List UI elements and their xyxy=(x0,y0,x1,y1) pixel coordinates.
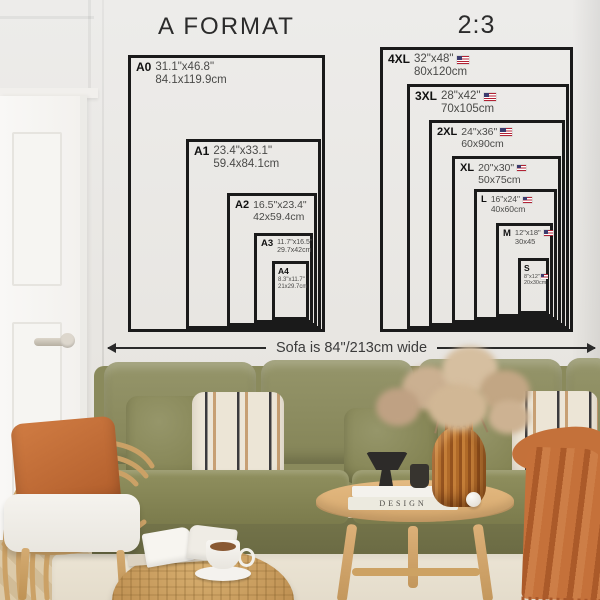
size-cm: 20x30cm xyxy=(524,280,544,286)
size-cm: 30x45 xyxy=(515,238,553,247)
us-flag-icon xyxy=(517,165,526,171)
size-cm: 80x120cm xyxy=(414,66,469,79)
size-inches: 31.1"x46.8" xyxy=(155,61,214,74)
size-box-a4: A4 8.3"x11.7" 21x29.7cm xyxy=(272,261,309,320)
us-flag-icon xyxy=(523,197,532,203)
size-label: 2XL xyxy=(437,126,457,150)
flower-blob xyxy=(376,388,420,426)
dried-flowers xyxy=(368,340,543,445)
size-cm: 21x29.7cm xyxy=(278,284,304,291)
size-cm: 42x59.4cm xyxy=(253,211,307,223)
flower-blob xyxy=(488,400,530,434)
size-inches: 8.3"x11.7" xyxy=(278,277,305,284)
size-box-s: S 8"x12" 20x30cm xyxy=(518,258,549,314)
poster-size-guide-photo: A FORMAT 2:3 A0 31.1"x46.8" 84.1x119.9cm… xyxy=(0,0,600,600)
size-label: M xyxy=(503,229,511,246)
size-label: A1 xyxy=(194,145,209,171)
table-stretcher xyxy=(352,568,480,576)
size-label: A3 xyxy=(261,239,273,255)
size-cm: 60x90cm xyxy=(461,138,512,150)
size-cm: 29.7x42cm xyxy=(277,247,312,255)
us-flag-icon xyxy=(484,93,496,101)
flower-blob xyxy=(428,384,488,430)
table-leg xyxy=(408,526,418,588)
size-inches: 32"x48" xyxy=(414,53,454,66)
size-cm: 40x60cm xyxy=(491,205,532,215)
size-cm: 84.1x119.9cm xyxy=(155,74,226,87)
white-sphere xyxy=(466,492,481,507)
us-flag-icon xyxy=(457,56,469,64)
size-inches: 28"x42" xyxy=(441,90,481,103)
door-handle-rosette xyxy=(60,333,75,348)
size-cm: 50x75cm xyxy=(478,174,526,186)
size-label: S xyxy=(524,264,544,274)
size-label: 3XL xyxy=(415,90,437,116)
size-label: A4 xyxy=(278,267,304,277)
size-inches: 23.4"x33.1" xyxy=(213,145,272,158)
size-inches: 16.5"x23.4" xyxy=(253,199,307,211)
ratio-2-3-title: 2:3 xyxy=(380,11,573,40)
book-spine-text: DESIGN xyxy=(379,499,426,508)
size-cm: 70x105cm xyxy=(441,103,496,116)
us-flag-icon xyxy=(544,230,553,236)
size-inches: 20"x30" xyxy=(478,162,514,174)
size-cm: 59.4x84.1cm xyxy=(213,158,279,171)
us-flag-icon xyxy=(500,128,512,136)
us-flag-icon xyxy=(541,274,548,279)
size-label: A2 xyxy=(235,199,249,223)
cup-handle xyxy=(238,548,255,567)
black-cup xyxy=(410,464,429,488)
size-label: L xyxy=(481,195,487,215)
a-format-title: A FORMAT xyxy=(128,13,325,41)
chair-seat-cushion xyxy=(4,494,140,552)
coffee-surface xyxy=(210,542,236,551)
size-label: A0 xyxy=(136,61,151,87)
wall-molding-line-vertical xyxy=(88,0,91,92)
arrow-left-icon xyxy=(108,347,266,349)
size-label: XL xyxy=(460,162,474,186)
size-inches: 24"x36" xyxy=(461,126,497,138)
size-label: 4XL xyxy=(388,53,410,79)
door-panel xyxy=(12,132,62,286)
throw-blanket-drape xyxy=(521,447,600,600)
size-inches: 11.7"x16.5" xyxy=(277,239,312,247)
wall-molding-line xyxy=(0,16,94,19)
